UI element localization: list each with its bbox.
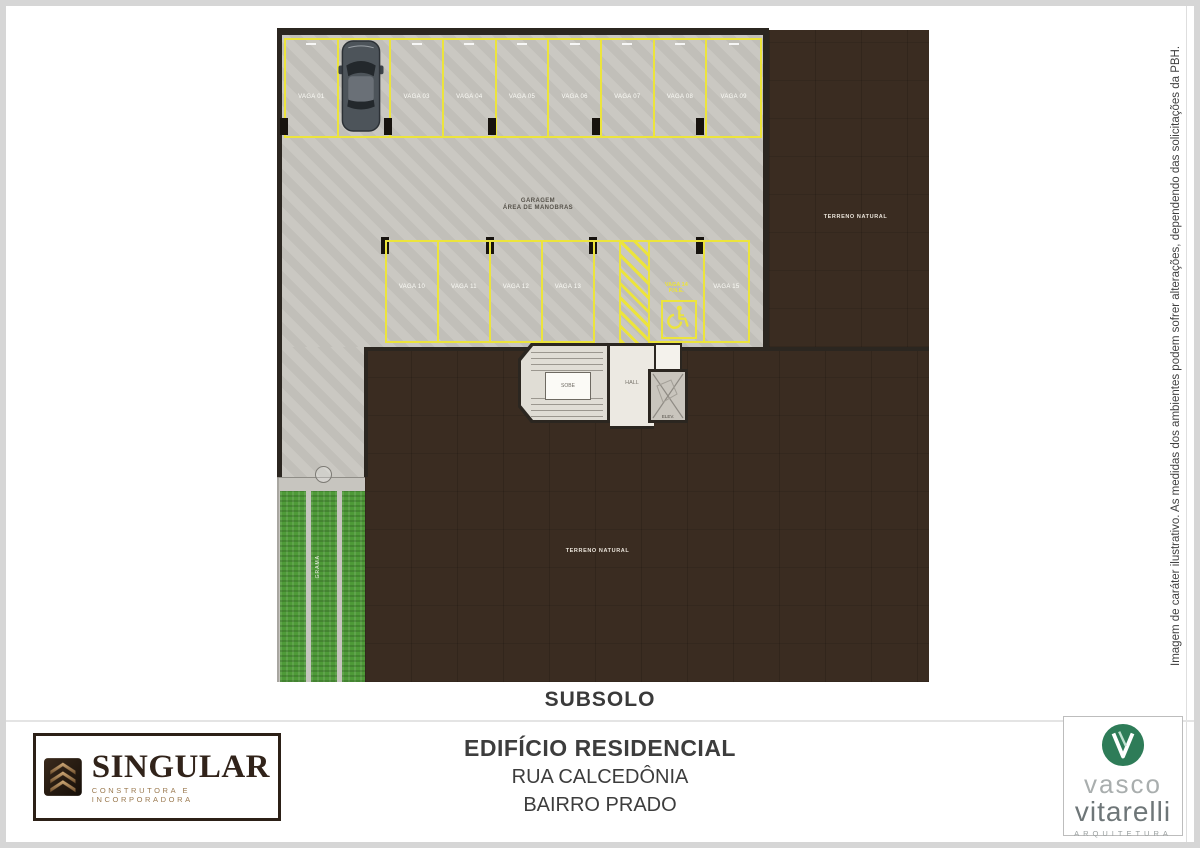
architect-last-name: vitarelli (1064, 797, 1182, 826)
parking-space: VAGA 07 (602, 40, 655, 136)
parking-space-label: VAGA 06 (549, 94, 600, 100)
grass-strip (342, 491, 365, 682)
dimension-tick (570, 43, 580, 45)
parking-space: VAGA 12 (489, 242, 541, 343)
dimension-tick (675, 43, 685, 45)
dimension-tick (517, 43, 527, 45)
architect-logo: vasco vitarelli ARQUITETURA (1063, 716, 1183, 836)
elevator: ELEV. (648, 369, 688, 423)
parking-space-label: VAGA 15 (705, 284, 748, 290)
no-parking-hatch (619, 242, 650, 343)
architect-tagline: ARQUITETURA (1064, 829, 1182, 838)
elevator-label: ELEV. (651, 414, 685, 419)
parking-space: VAGA 13 (541, 242, 593, 343)
stair-landing: SOBE (545, 372, 591, 400)
parking-space-label: VAGA 01 (286, 94, 337, 100)
parking-space-label: VAGA 13 (543, 284, 593, 290)
wall (763, 28, 769, 347)
parking-space-label: VAGA 11 (439, 284, 489, 290)
parking-space: VAGA 10 (385, 242, 437, 343)
terrain-label-right: TERRENO NATURAL (808, 214, 903, 220)
wall (364, 351, 368, 477)
dimension-tick (622, 43, 632, 45)
accessible-parking-space: VAGA 14 P.N.E. (650, 242, 703, 343)
stairs: SOBE (521, 346, 607, 420)
wall (277, 28, 282, 478)
parking-space-label: VAGA 04 (444, 94, 495, 100)
project-district: BAIRRO PRADO (0, 791, 1200, 819)
grass-strip (311, 491, 337, 682)
parking-space-label: VAGA 10 (387, 284, 437, 290)
project-street: RUA CALCEDÔNIA (0, 763, 1200, 791)
column (696, 118, 704, 135)
column (592, 118, 600, 135)
parking-space-label: VAGA 08 (655, 94, 706, 100)
parking-space: VAGA 11 (437, 242, 489, 343)
parking-space: VAGA 15 (703, 242, 750, 343)
plan-title: SUBSOLO (0, 688, 1200, 712)
floor-plan-sheet: VAGA 01 VAGA 02 VAGA 03 VAGA 04 VAGA 05 … (0, 0, 1200, 848)
car (338, 40, 384, 132)
parking-space-label: VAGA 12 (491, 284, 541, 290)
wheelchair-icon (661, 300, 697, 339)
open-bay (593, 242, 619, 343)
garden-area: GRAMA (277, 477, 365, 682)
architect-first-name: vasco (1064, 772, 1182, 797)
parking-space: VAGA 01 (286, 40, 339, 136)
disclaimer-text: Imagem de caráter ilustrativo. As medida… (1170, 42, 1182, 670)
parking-space: VAGA 05 (497, 40, 550, 136)
terrain-label-bottom: TERRENO NATURAL (550, 548, 645, 554)
stairwell-core: SOBE HALL ELEV. (518, 343, 688, 423)
v-leaf-icon (1101, 723, 1145, 767)
dimension-tick (729, 43, 739, 45)
parking-space-label: VAGA 05 (497, 94, 548, 100)
garage-label: GARAGEM ÁREA DE MANOBRAS (468, 198, 608, 212)
parking-row-middle: VAGA 10 VAGA 11 VAGA 12 VAGA 13 VAGA 14 … (385, 240, 750, 343)
column (280, 118, 288, 135)
column (384, 118, 392, 135)
project-title: EDIFÍCIO RESIDENCIAL (0, 733, 1200, 763)
column (488, 118, 496, 135)
dimension-tick (464, 43, 474, 45)
grass-strip (280, 491, 306, 682)
footer-divider (0, 720, 1200, 722)
garden-label: GRAMA (315, 555, 321, 578)
accessible-space-label: VAGA 14 P.N.E. (650, 282, 703, 294)
stair-treads (531, 398, 603, 422)
shaft (654, 343, 682, 371)
parking-space-label: VAGA 07 (602, 94, 653, 100)
parking-space: VAGA 09 (707, 40, 760, 136)
garden-edge (277, 477, 279, 682)
dimension-tick (306, 43, 316, 45)
dimension-tick (412, 43, 422, 45)
parking-space-label: VAGA 03 (391, 94, 442, 100)
parking-space: VAGA 03 (391, 40, 444, 136)
walkway (282, 347, 364, 477)
natural-terrain-right (769, 30, 929, 347)
gate-marker (315, 466, 332, 483)
wall (277, 28, 769, 35)
parking-space-label: VAGA 09 (707, 94, 760, 100)
project-info: EDIFÍCIO RESIDENCIAL RUA CALCEDÔNIA BAIR… (0, 733, 1200, 819)
